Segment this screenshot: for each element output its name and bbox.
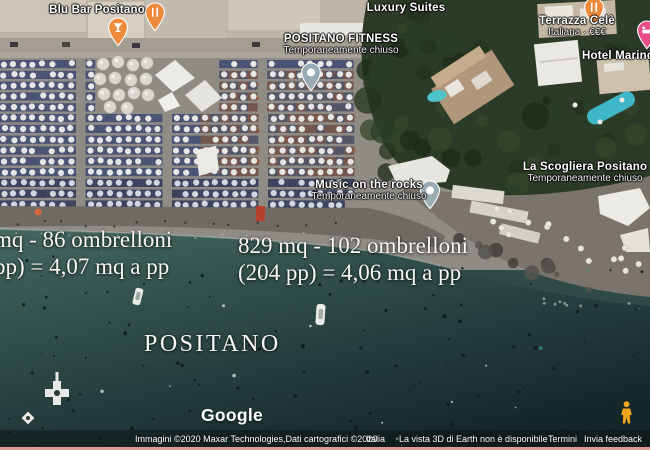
place-name: Blu Bar Positano bbox=[49, 4, 145, 16]
annotation-line: 829 mq - 102 ombrelloni bbox=[238, 232, 468, 259]
street-view-pegman-icon[interactable] bbox=[620, 401, 633, 430]
google-logo[interactable]: Google bbox=[201, 405, 263, 426]
place-status: Temporaneamente chiuso bbox=[523, 173, 647, 184]
place-status: Temporaneamente chiuso bbox=[311, 191, 426, 202]
place-name: POSITANO FITNESS bbox=[283, 33, 398, 45]
place-title: POSITANO bbox=[144, 331, 281, 358]
closed-place-pin[interactable] bbox=[300, 62, 322, 92]
restaurant-pin[interactable] bbox=[144, 2, 166, 32]
annotation-line: mq - 86 ombrelloni bbox=[0, 226, 172, 253]
region-label: Italia bbox=[366, 434, 385, 444]
annotation-line: (204 pp) = 4,06 mq a pp bbox=[238, 259, 468, 286]
hotel-pin[interactable] bbox=[636, 20, 650, 50]
satellite-imagery bbox=[0, 0, 650, 450]
satellite-map-view[interactable]: Blu Bar Positano Luxury Suites POSITANO … bbox=[0, 0, 650, 450]
annotation-line: pp) = 4,07 mq a pp bbox=[0, 253, 172, 280]
map-label-music-on-the-rocks[interactable]: Music on the rocks Temporaneamente chius… bbox=[311, 179, 426, 202]
left-measurement-annotation: mq - 86 ombrelloni pp) = 4,07 mq a pp bbox=[0, 226, 172, 280]
cocktail-pin[interactable] bbox=[107, 17, 129, 47]
terms-link[interactable]: Termini bbox=[548, 434, 577, 444]
map-label-positano-fitness[interactable]: POSITANO FITNESS Temporaneamente chiuso bbox=[283, 33, 398, 56]
place-name: Music on the rocks bbox=[311, 179, 426, 191]
map-label-luxury-suites[interactable]: Luxury Suites bbox=[367, 2, 446, 14]
map-label-blu-bar[interactable]: Blu Bar Positano bbox=[49, 4, 145, 16]
map-label-terrazza-cele[interactable]: Terrazza Celè Italiana · €€€ bbox=[539, 15, 615, 38]
attribution-bar: Immagini ©2020 Maxar Technologies,Dati c… bbox=[0, 430, 650, 447]
place-name: Terrazza Celè bbox=[539, 15, 615, 27]
map-label-la-scogliera[interactable]: La Scogliera Positano Temporaneamente ch… bbox=[523, 161, 647, 184]
feedback-link[interactable]: Invia feedback bbox=[584, 434, 642, 444]
place-name: Luxury Suites bbox=[367, 2, 446, 14]
center-measurement-annotation: 829 mq - 102 ombrelloni (204 pp) = 4,06 … bbox=[238, 232, 468, 286]
place-name: La Scogliera Positano bbox=[523, 161, 647, 173]
place-status: Temporaneamente chiuso bbox=[283, 45, 398, 56]
place-info: Italiana · €€€ bbox=[539, 27, 615, 38]
place-name: Hotel Marinca bbox=[582, 50, 650, 62]
map-label-hotel-marinca[interactable]: Hotel Marinca bbox=[582, 50, 650, 62]
earth-3d-notice: La vista 3D di Earth non è disponibile bbox=[399, 434, 548, 444]
imagery-attribution: Immagini ©2020 Maxar Technologies,Dati c… bbox=[135, 434, 377, 444]
